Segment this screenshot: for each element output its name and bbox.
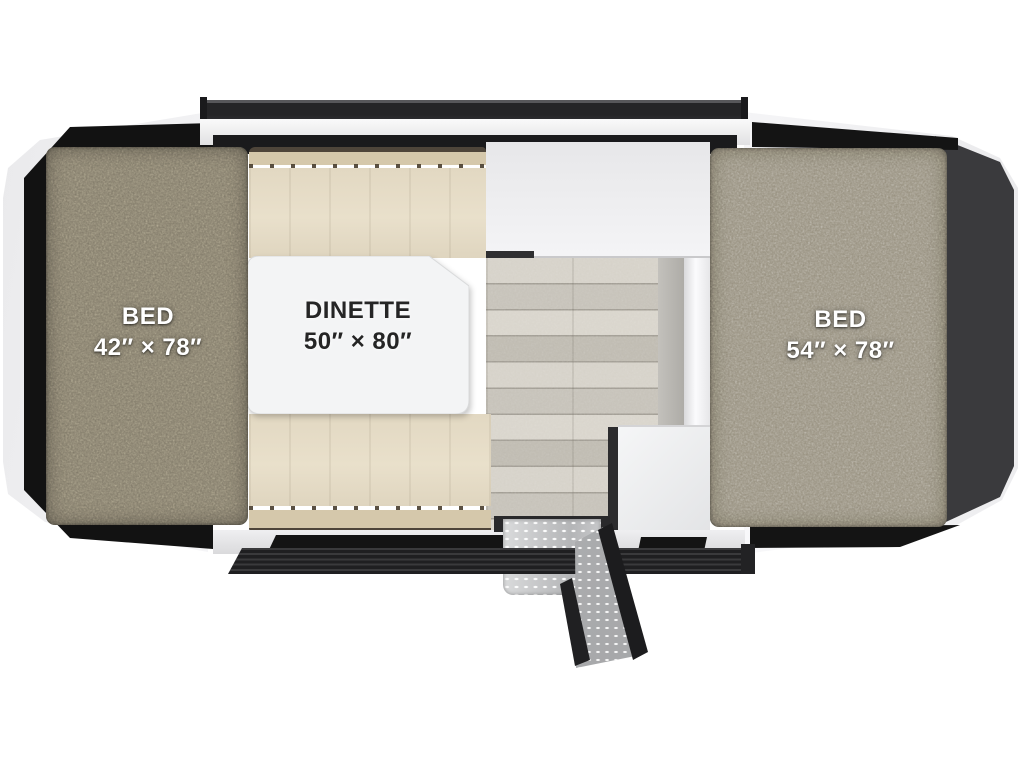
dinette-label-name: DINETTE bbox=[305, 299, 411, 323]
storage-cabinet bbox=[618, 425, 710, 532]
bumper-rail-cap bbox=[741, 544, 755, 574]
bench-backrest bbox=[249, 510, 491, 528]
dinette-label-size: 50″ × 80″ bbox=[304, 330, 412, 354]
left-bed-label-size: 42″ × 78″ bbox=[94, 336, 202, 360]
counter-lip bbox=[486, 251, 534, 258]
bench-cushion bbox=[249, 414, 491, 506]
cabinet-face-strip bbox=[684, 258, 710, 430]
bumper-rail bbox=[228, 548, 750, 574]
popup-camper-floorplan: BED 42″ × 78″ DINETTE 50″ × 80″ BED 54″ … bbox=[0, 0, 1024, 768]
bench-cushion bbox=[249, 168, 486, 258]
dinette-bench-bottom bbox=[249, 414, 491, 534]
dinette-label: DINETTE 50″ × 80″ bbox=[247, 299, 469, 354]
left-bed-label: BED 42″ × 78″ bbox=[48, 305, 248, 360]
dinette-bench-top bbox=[249, 147, 486, 258]
right-bed-label: BED 54″ × 78″ bbox=[722, 308, 959, 363]
cabinet-side-panel bbox=[658, 258, 684, 430]
left-bed-label-name: BED bbox=[122, 305, 174, 329]
right-bed-label-size: 54″ × 78″ bbox=[786, 339, 894, 363]
right-bed-label-name: BED bbox=[814, 308, 866, 332]
galley-counter bbox=[486, 142, 710, 258]
